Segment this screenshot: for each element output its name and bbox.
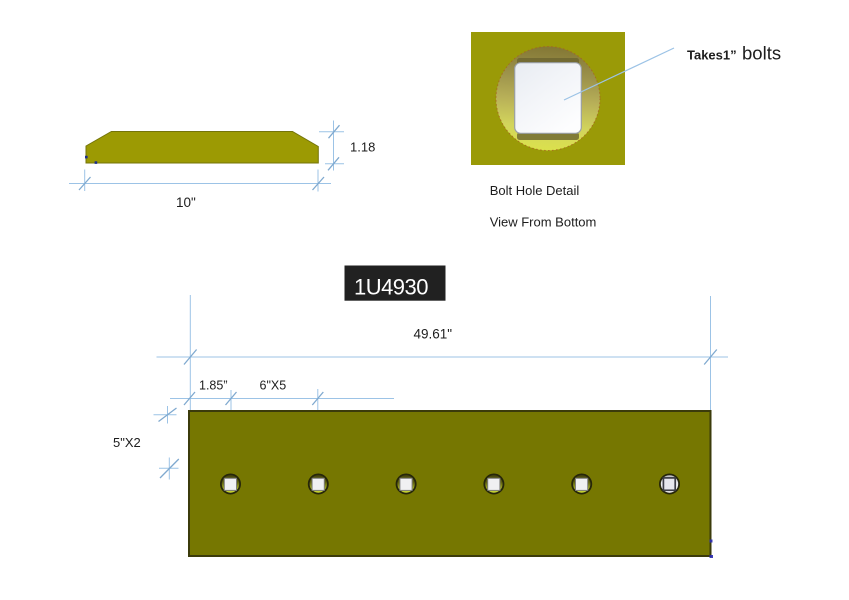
- svg-text:Bolt Hole Detail: Bolt Hole Detail: [490, 183, 580, 198]
- svg-text:Takes1”: Takes1”: [687, 48, 737, 63]
- svg-text:10": 10": [176, 195, 196, 210]
- svg-text:49.61": 49.61": [414, 327, 453, 342]
- svg-text:bolts: bolts: [742, 43, 781, 64]
- svg-text:6"X5: 6"X5: [260, 379, 287, 393]
- svg-text:1U4930: 1U4930: [354, 275, 428, 300]
- svg-text:5"X2: 5"X2: [113, 435, 141, 450]
- svg-text:View From Bottom: View From Bottom: [490, 215, 597, 230]
- svg-text:1.85”: 1.85”: [199, 379, 228, 393]
- svg-text:1.18: 1.18: [350, 140, 375, 155]
